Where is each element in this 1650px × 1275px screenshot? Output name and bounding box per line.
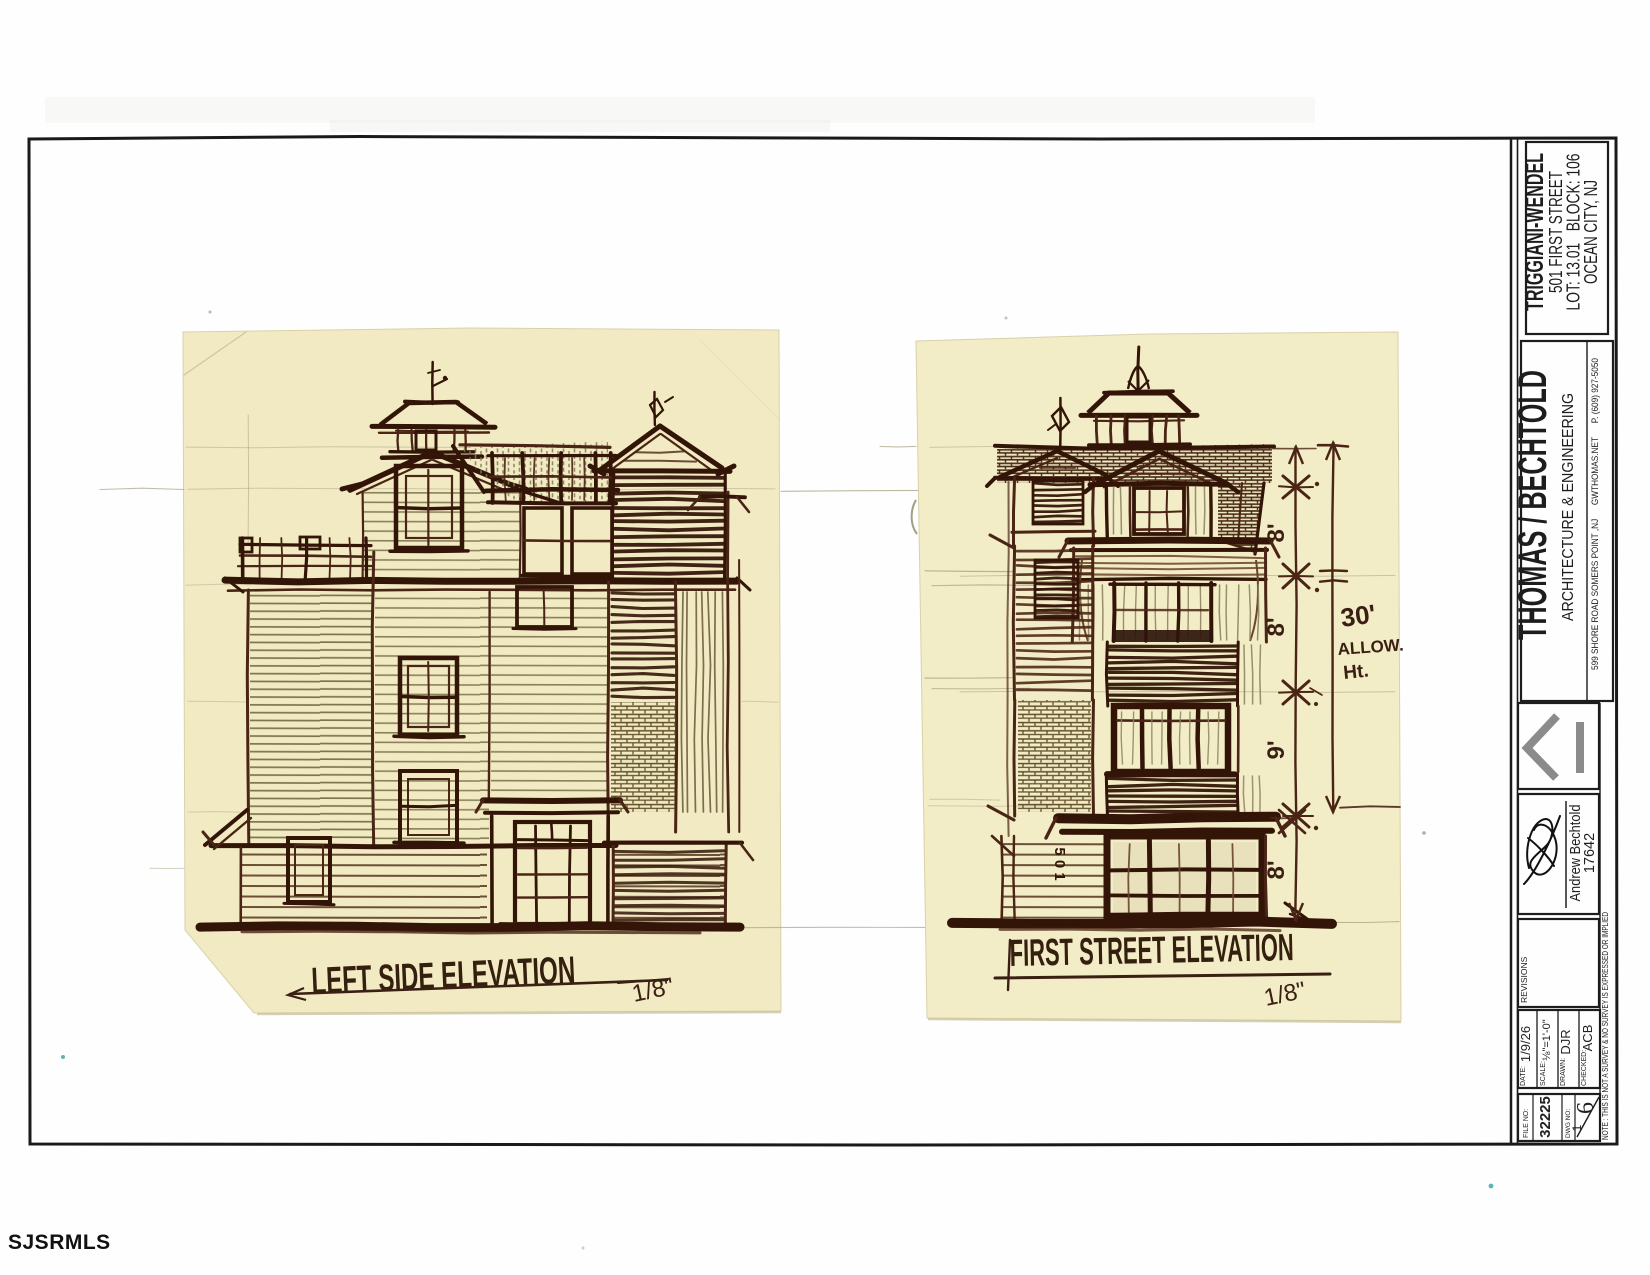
svg-text:⅛"=1'-0": ⅛"=1'-0" xyxy=(1541,1019,1553,1061)
svg-text:THOMAS / BECHTOLD: THOMAS / BECHTOLD xyxy=(1511,370,1555,640)
svg-text:1: 1 xyxy=(1570,1124,1584,1131)
svg-text:SJSRMLS: SJSRMLS xyxy=(8,1231,111,1254)
svg-text:ARCHITECTURE & ENGINEERING: ARCHITECTURE & ENGINEERING xyxy=(1560,393,1577,621)
svg-text:17642: 17642 xyxy=(1582,833,1598,873)
svg-text:8': 8' xyxy=(1263,617,1290,636)
svg-text:DRAWN:: DRAWN: xyxy=(1560,1058,1567,1086)
svg-text:1/9/26: 1/9/26 xyxy=(1518,1026,1533,1062)
svg-text:5 0 1: 5 0 1 xyxy=(1051,847,1068,880)
svg-text:DJR: DJR xyxy=(1558,1029,1573,1054)
svg-text:REVISIONS: REVISIONS xyxy=(1519,956,1529,1003)
svg-text:DWG NO:: DWG NO: xyxy=(1565,1109,1572,1138)
svg-text:32225: 32225 xyxy=(1537,1096,1554,1138)
svg-text:TRIGGIANI-WENDEL: TRIGGIANI-WENDEL xyxy=(1521,153,1549,311)
svg-text:CHECKED:: CHECKED: xyxy=(1581,1050,1588,1086)
svg-text:6: 6 xyxy=(1573,1102,1599,1114)
svg-text:DATE:: DATE: xyxy=(1520,1066,1527,1086)
svg-text:FILE NO:: FILE NO: xyxy=(1523,1109,1530,1138)
svg-text:8': 8' xyxy=(1263,523,1290,542)
svg-text:NOTE : THIS IS NOT A SURVEY &: NOTE : THIS IS NOT A SURVEY & NO SURVEY … xyxy=(1600,912,1610,1140)
svg-text:30': 30' xyxy=(1339,598,1378,633)
svg-text:Ht.: Ht. xyxy=(1342,660,1369,684)
svg-text:8': 8' xyxy=(1263,860,1290,879)
svg-text:599 SHORE ROAD SOMERS POINT ,N: 599 SHORE ROAD SOMERS POINT ,NJ GWTHOMAS… xyxy=(1590,358,1601,670)
svg-text:ACB: ACB xyxy=(1580,1025,1595,1052)
svg-text:FIRST STREET ELEVATION: FIRST STREET ELEVATION xyxy=(1009,927,1294,975)
svg-text:9': 9' xyxy=(1263,740,1290,759)
svg-text:SCALE:: SCALE: xyxy=(1540,1061,1547,1086)
svg-text:OCEAN CITY, NJ: OCEAN CITY, NJ xyxy=(1581,180,1601,284)
